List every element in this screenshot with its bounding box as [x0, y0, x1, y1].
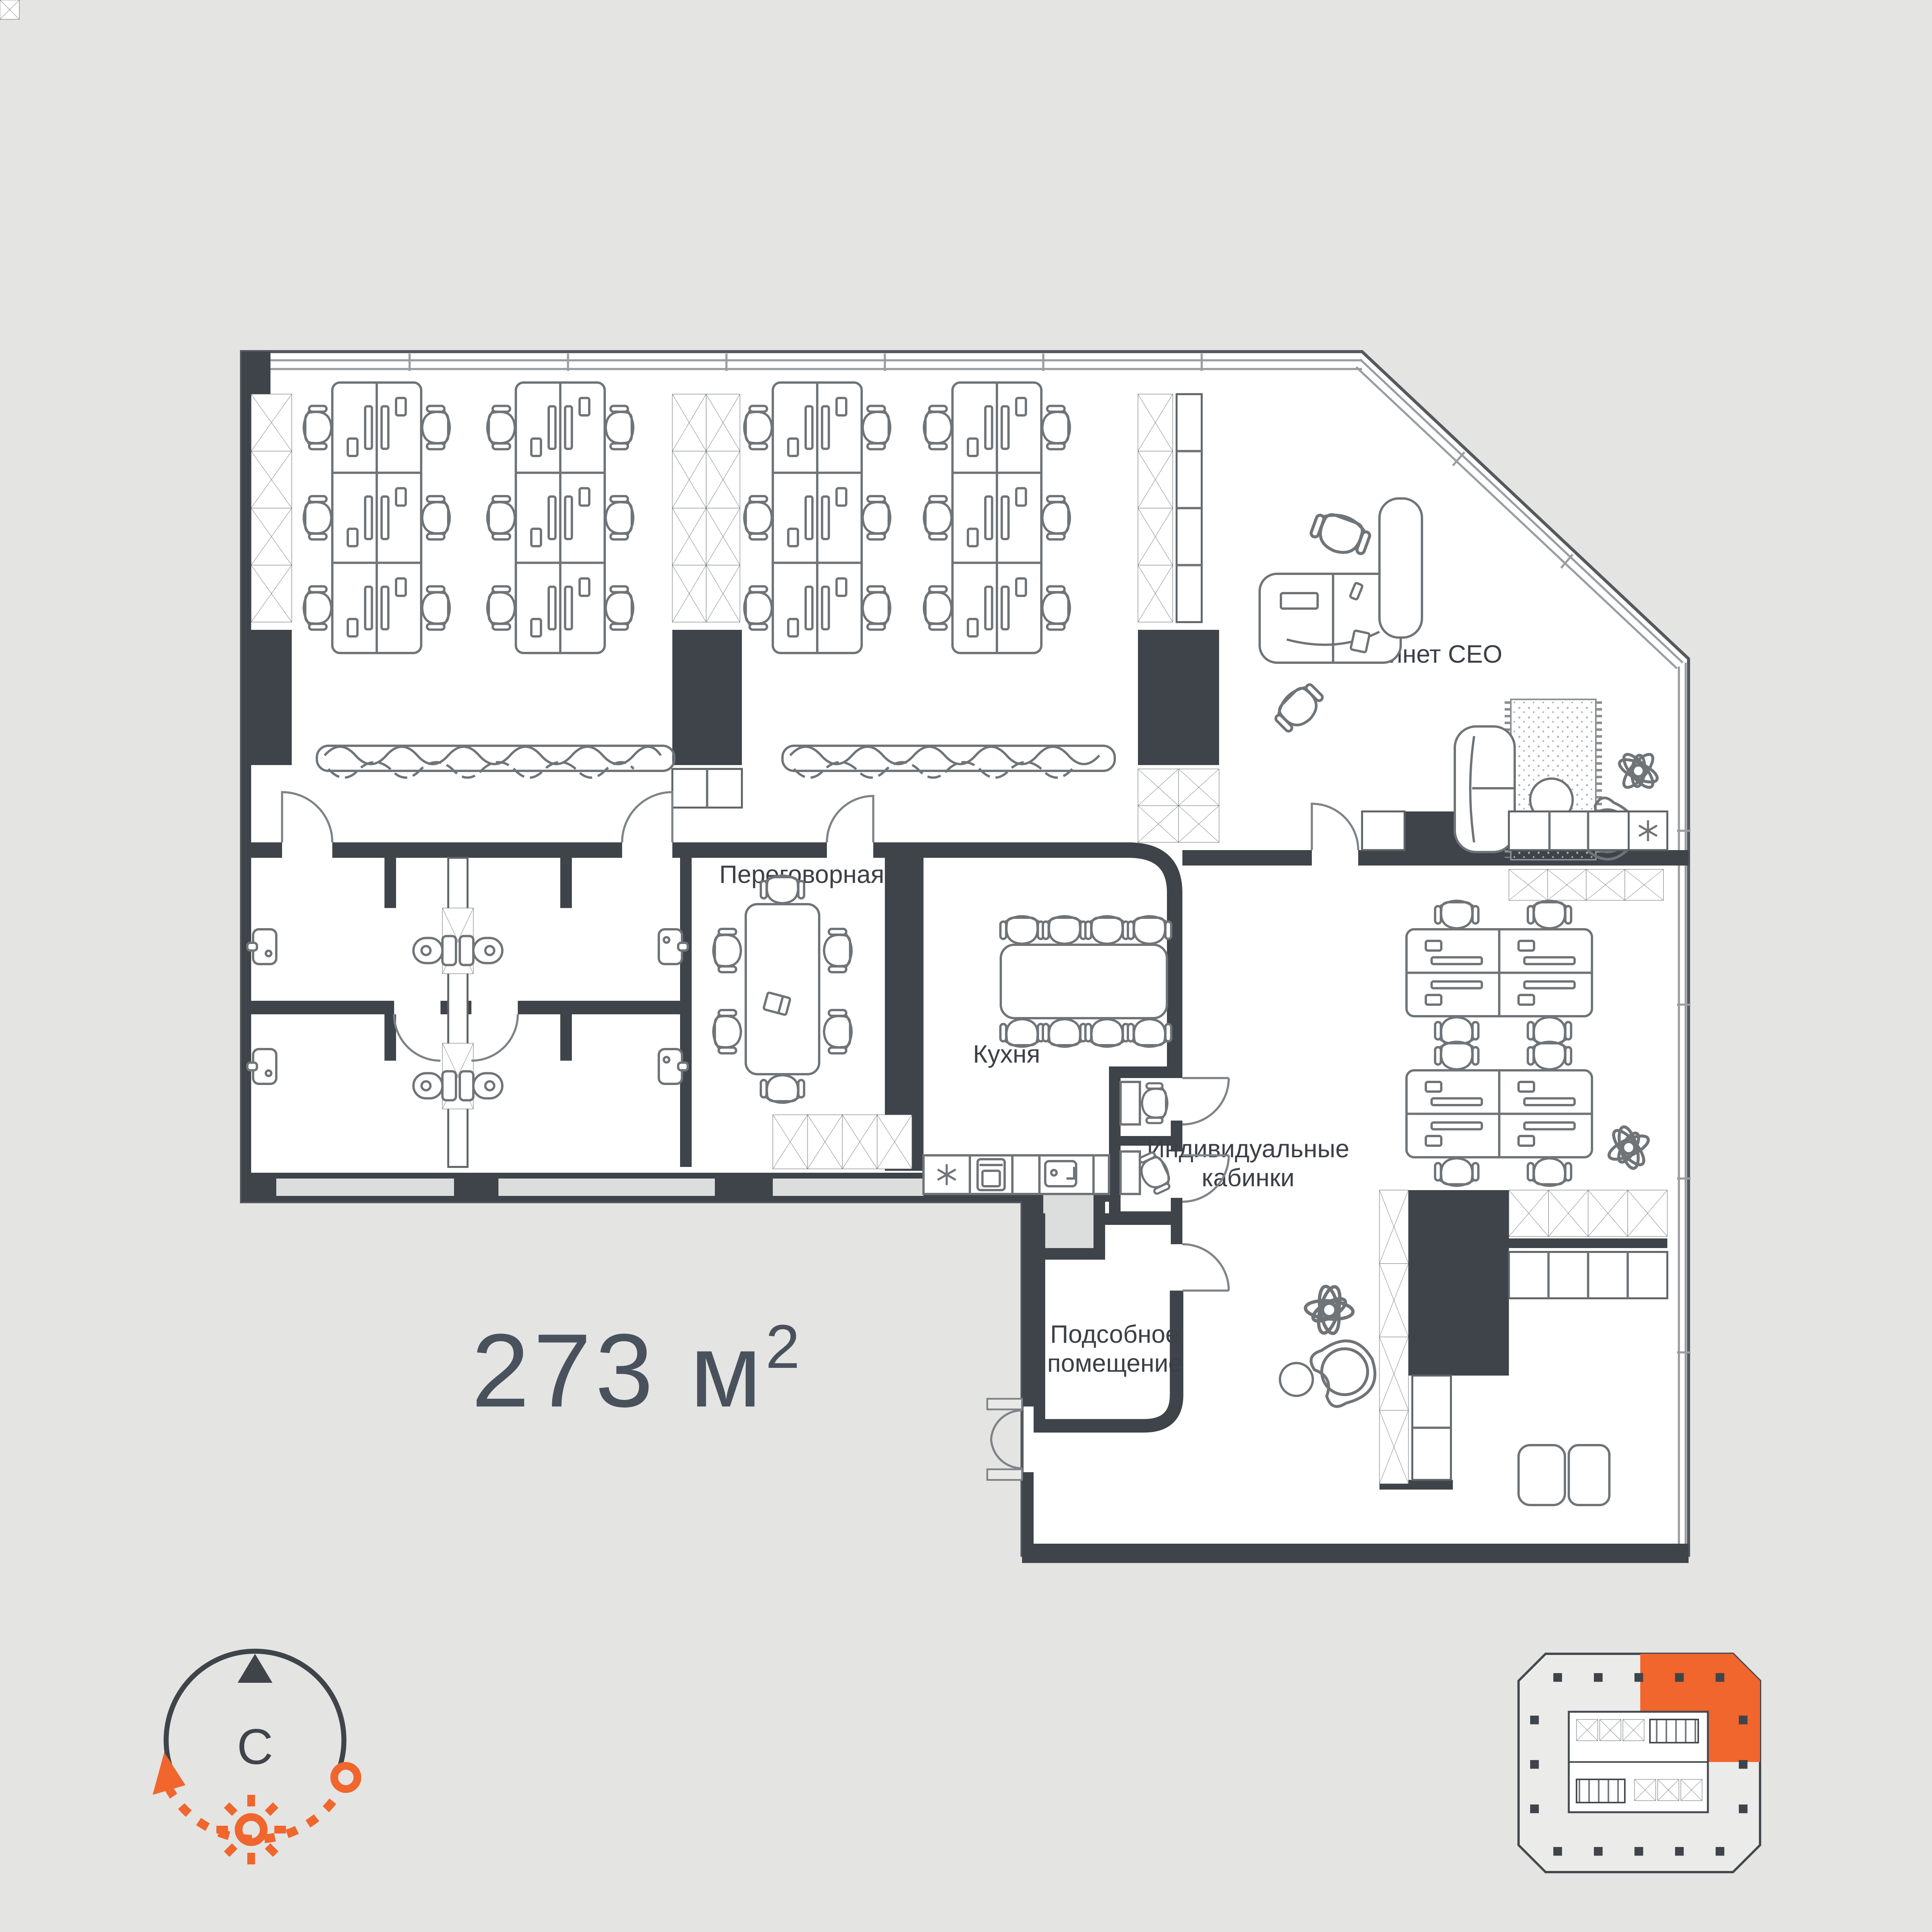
area-unit-sup: 2: [765, 1312, 804, 1381]
compass-north-letter: С: [237, 1718, 273, 1775]
floor-plan-canvas: Переговорная Кухня: [0, 0, 1932, 1932]
sun-path-end-dot: [334, 1766, 357, 1789]
booths-label-line1: Индивидуальные: [1147, 1134, 1349, 1163]
compass: С: [153, 1651, 357, 1864]
area-value: 273: [471, 1313, 657, 1429]
coat-rail-column: [1412, 1376, 1451, 1480]
coat-rail-row: [1509, 1252, 1667, 1298]
area-unit: м: [657, 1313, 765, 1429]
meeting-table: [746, 904, 819, 1074]
side-table: [1280, 1363, 1313, 1396]
pouf: [1569, 1445, 1609, 1505]
area-label: 273 м2: [471, 1312, 804, 1429]
entrance-door: [987, 1399, 1022, 1480]
bookshelf-column: [1177, 394, 1202, 622]
utility-label-line2: помещение: [1047, 1349, 1182, 1377]
kitchen-counter: [923, 1155, 1109, 1194]
office-floor-plan: Переговорная Кухня: [0, 0, 1932, 1932]
kitchen-table: [1001, 945, 1167, 1018]
sun-icon: [216, 1795, 286, 1864]
utility-label-line1: Подсобное: [1050, 1320, 1179, 1348]
pouf: [1519, 1445, 1565, 1505]
north-arrow-icon: [238, 1654, 272, 1683]
sofa: [1455, 726, 1515, 852]
lockers: [672, 769, 742, 808]
floor-plan: Переговорная Кухня: [241, 352, 1690, 1563]
